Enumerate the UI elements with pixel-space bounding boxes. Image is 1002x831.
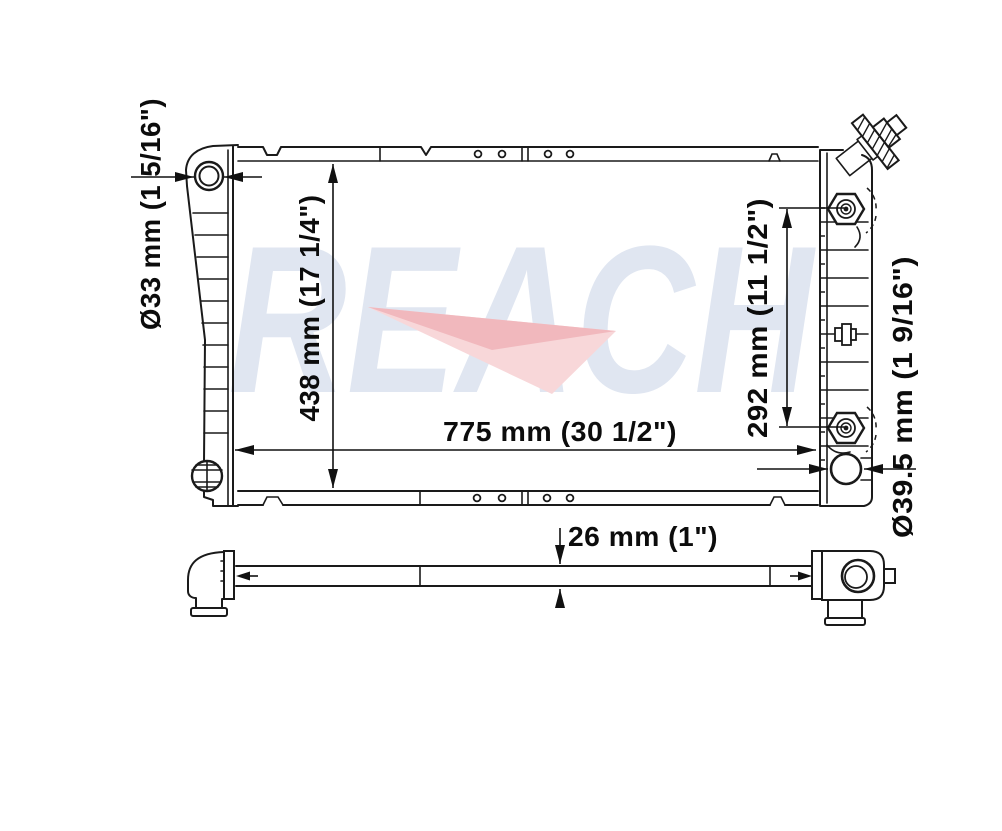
diagram-canvas: REACH xyxy=(0,0,1002,831)
flow-arrow-right xyxy=(798,572,812,581)
dim-inlet-diameter-label: Ø33 mm (1 5/16") xyxy=(135,98,166,330)
flow-arrow-left xyxy=(236,572,250,581)
dim-core-width-label: 775 mm (30 1/2") xyxy=(443,416,677,447)
dim-core-height-label: 438 mm (17 1/4") xyxy=(294,195,325,422)
inlet-port xyxy=(195,162,223,190)
side-left-elbow xyxy=(188,551,258,616)
radiator-diagram-page: REACH xyxy=(0,0,1002,831)
dim-core-thickness: 26 mm (1") xyxy=(560,521,718,608)
top-rail-holes xyxy=(475,151,574,158)
top-rail-notch xyxy=(769,154,780,161)
mid-plug-fitting xyxy=(835,324,856,345)
left-tank-ribs xyxy=(193,213,228,433)
oil-cooler-fitting-upper xyxy=(828,188,876,247)
dim-outlet-diameter-label: Ø39.5 mm (1 9/16") xyxy=(887,256,918,538)
top-rail xyxy=(238,147,818,161)
drain-petcock xyxy=(192,461,222,491)
bottom-rail-holes xyxy=(474,495,574,502)
bottom-rail xyxy=(238,491,818,505)
side-core xyxy=(236,566,814,586)
bottom-rail-notch-right xyxy=(770,497,785,505)
dim-fitting-spacing-label: 292 mm (11 1/2") xyxy=(742,198,773,438)
bottom-rail-notch-left xyxy=(263,497,283,505)
radiator-side-view xyxy=(188,551,895,625)
side-right-fitting xyxy=(790,551,895,625)
dim-core-thickness-label: 26 mm (1") xyxy=(568,521,718,552)
